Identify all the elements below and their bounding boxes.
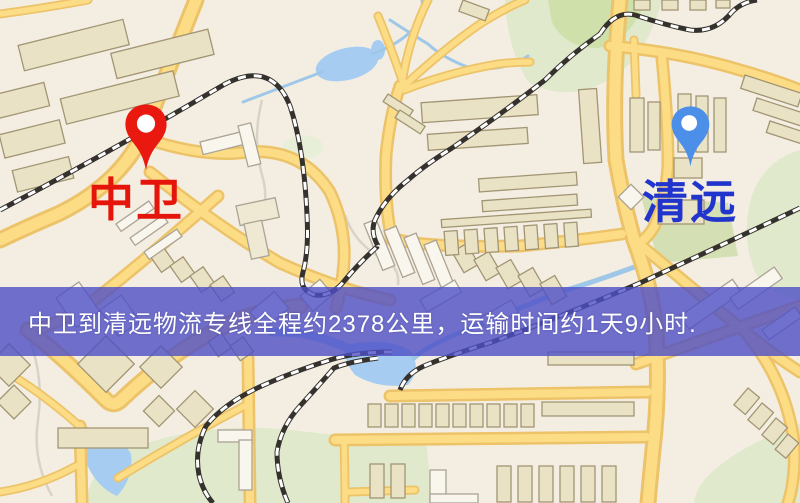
logistics-route-map: 中卫 清远 中卫到清远物流专线全程约2378公里，运输时间约1天9小时.: [0, 0, 800, 503]
origin-pin-icon[interactable]: [123, 103, 169, 172]
route-info-banner: 中卫到清远物流专线全程约2378公里，运输时间约1天9小时.: [0, 287, 800, 356]
destination-city-label: 清远: [642, 179, 738, 225]
map-canvas[interactable]: [0, 0, 800, 503]
origin-pin-hole: [137, 115, 155, 133]
destination-pin-hole: [681, 115, 697, 131]
route-info-text: 中卫到清远物流专线全程约2378公里，运输时间约1天9小时.: [0, 304, 697, 339]
destination-pin-icon[interactable]: [669, 105, 712, 168]
origin-pin-shape: [125, 104, 166, 170]
origin-city-label: 中卫: [88, 177, 184, 223]
